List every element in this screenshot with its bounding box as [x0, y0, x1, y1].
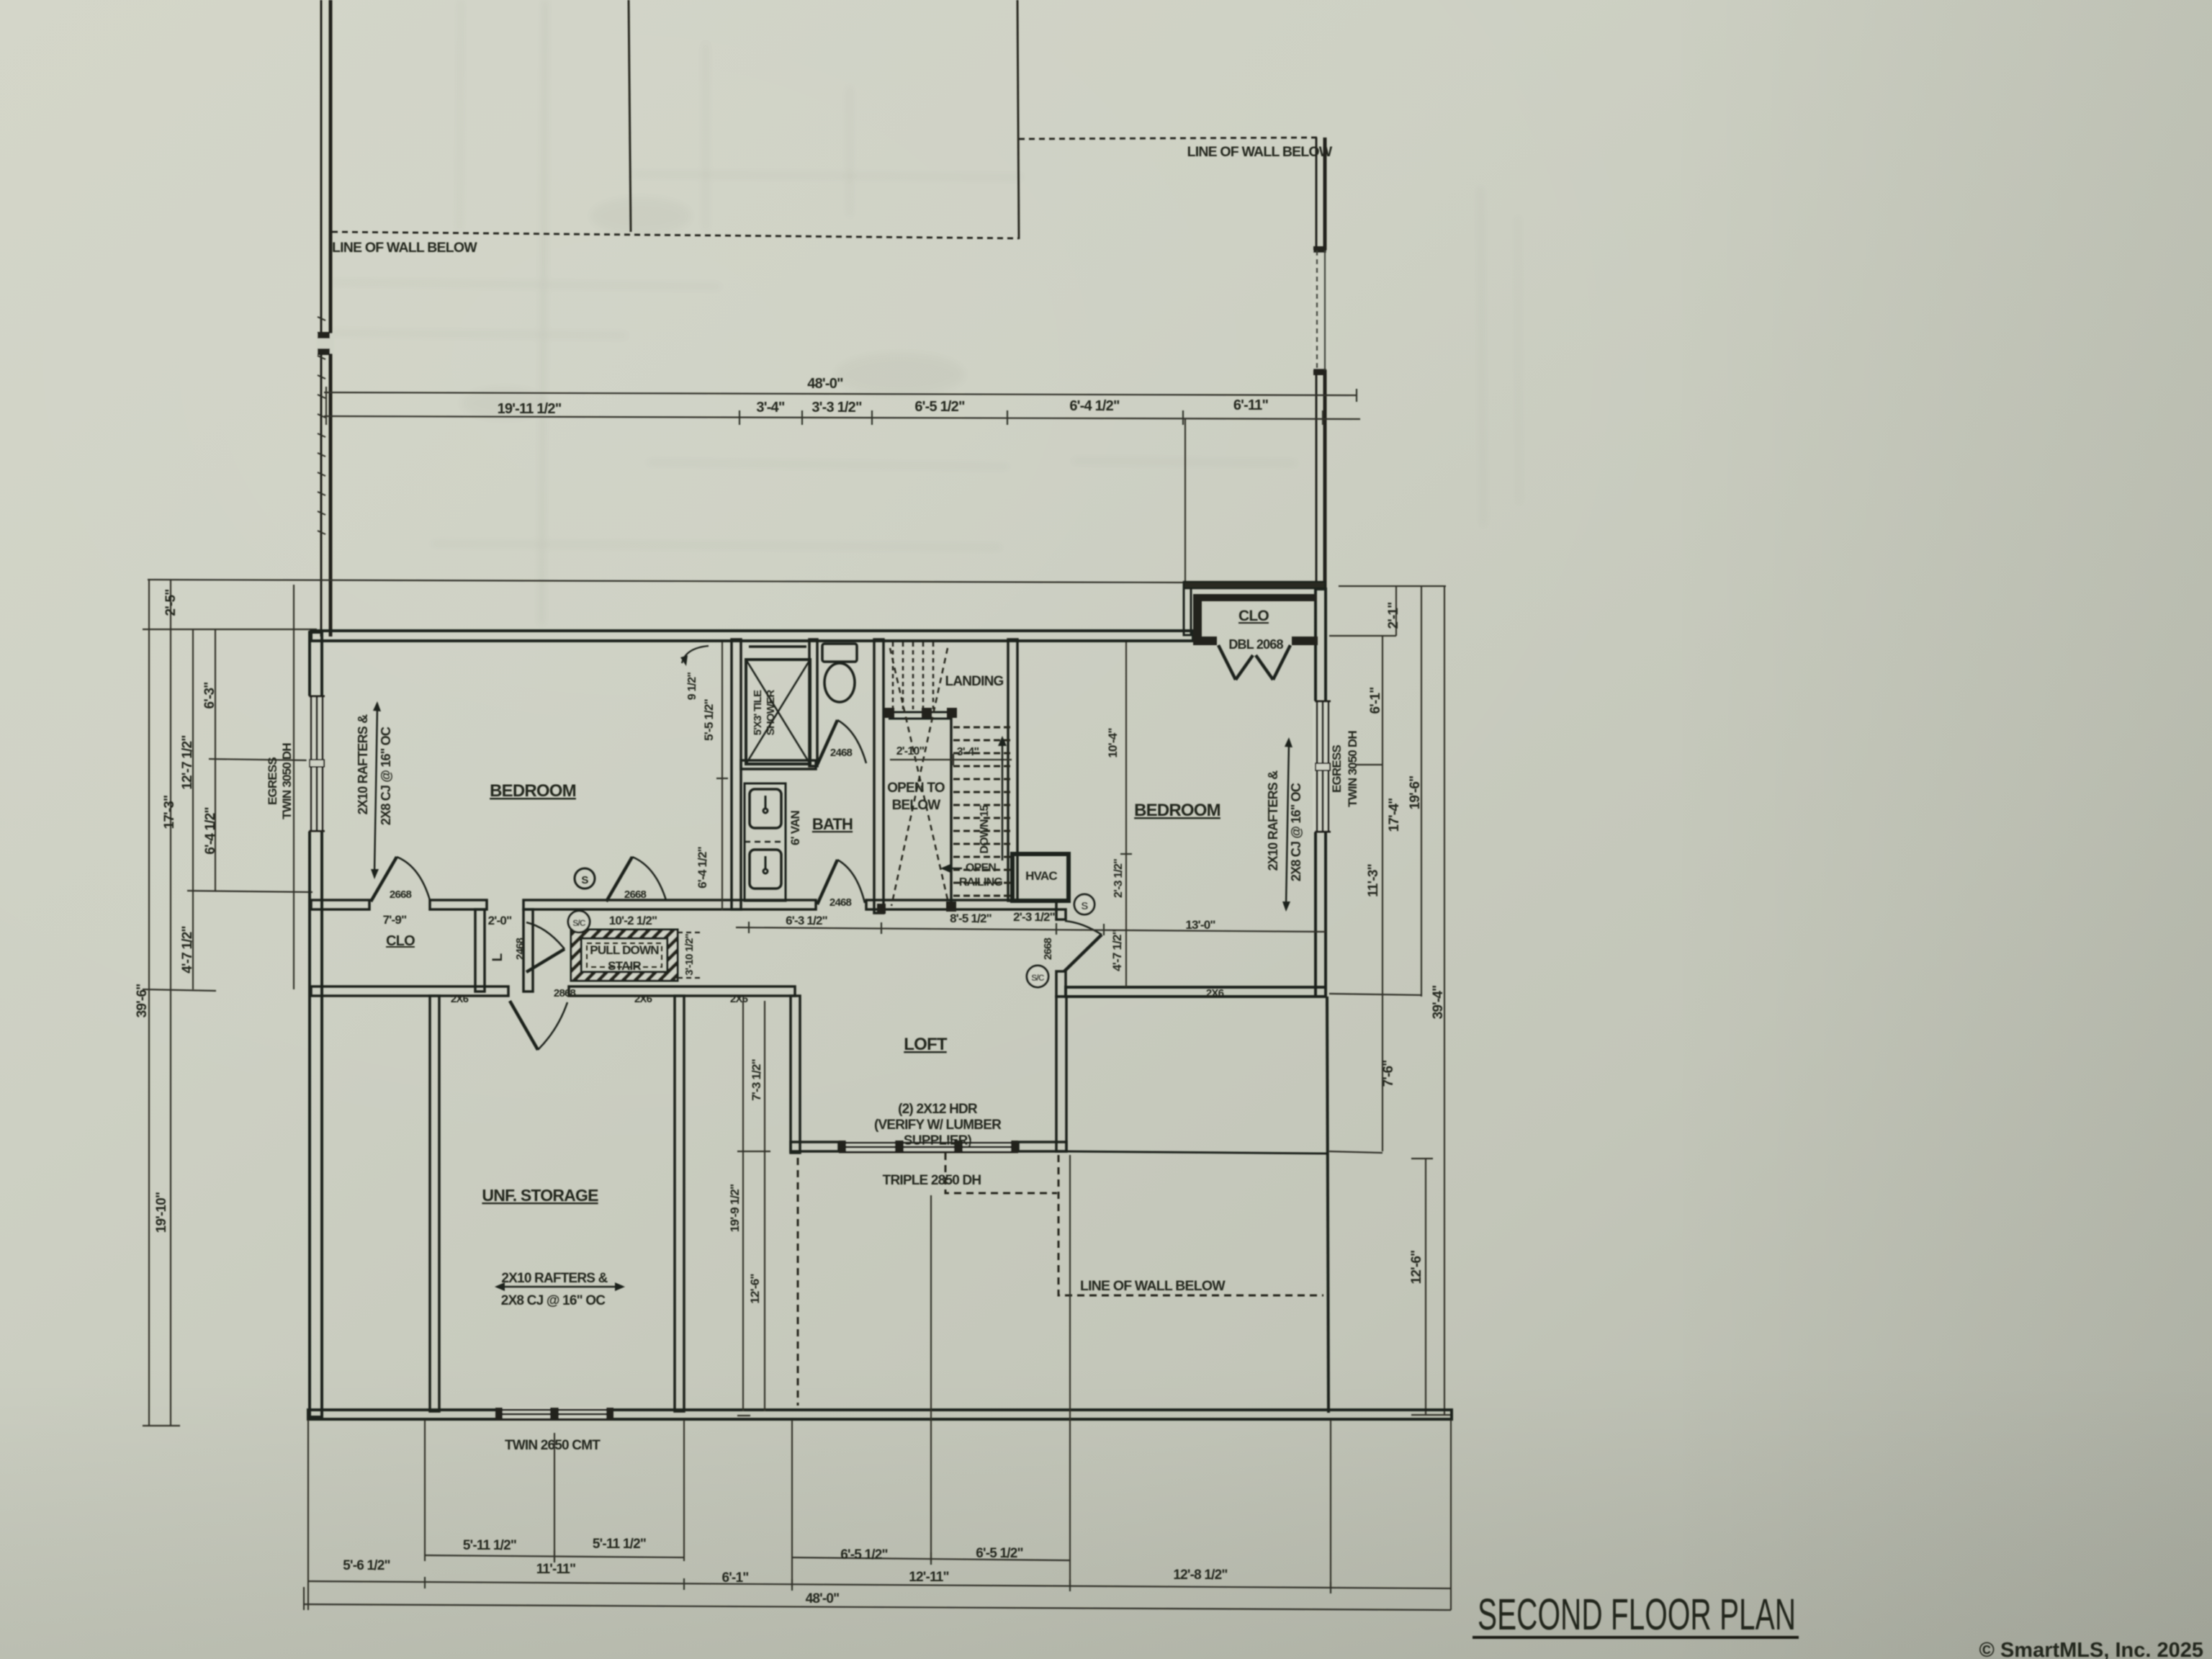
svg-text:CLO: CLO [386, 933, 415, 949]
svg-text:39'-4": 39'-4" [1431, 986, 1446, 1020]
svg-text:(2) 2X12 HDR: (2) 2X12 HDR [898, 1102, 978, 1117]
svg-text:7'-6": 7'-6" [1381, 1061, 1396, 1087]
svg-text:2'-0": 2'-0" [488, 914, 512, 927]
svg-text:EGRESS: EGRESS [1330, 745, 1344, 793]
svg-text:5'-5 1/2": 5'-5 1/2" [702, 699, 716, 741]
svg-text:OPEN: OPEN [966, 862, 996, 874]
svg-text:11'-3": 11'-3" [1366, 864, 1381, 897]
svg-text:17'-4": 17'-4" [1387, 799, 1402, 832]
svg-text:10'-4": 10'-4" [1106, 728, 1120, 757]
svg-text:TWIN 3050 DH: TWIN 3050 DH [280, 743, 294, 819]
svg-text:LANDING: LANDING [945, 674, 1004, 689]
svg-text:5'X3' TILE: 5'X3' TILE [752, 690, 764, 735]
svg-text:SHOWER: SHOWER [765, 690, 777, 736]
svg-text:19'-10": 19'-10" [154, 1192, 169, 1233]
svg-text:2X6: 2X6 [730, 993, 748, 1005]
svg-text:2X8 CJ @ 16" OC: 2X8 CJ @ 16" OC [1289, 783, 1303, 881]
svg-text:(VERIFY W/ LUMBER: (VERIFY W/ LUMBER [874, 1118, 1002, 1133]
svg-text:5'-6 1/2": 5'-6 1/2" [343, 1558, 390, 1573]
svg-text:6'-4 1/2": 6'-4 1/2" [1069, 398, 1120, 414]
svg-text:BEDROOM: BEDROOM [1134, 801, 1220, 820]
svg-text:3'-4": 3'-4" [957, 746, 979, 758]
svg-text:3'-4": 3'-4" [756, 400, 784, 415]
svg-text:S: S [1081, 900, 1088, 912]
svg-text:2X6: 2X6 [1206, 987, 1224, 999]
svg-text:48'-0": 48'-0" [807, 376, 843, 392]
svg-text:48'-0": 48'-0" [806, 1591, 840, 1606]
svg-text:6'-3": 6'-3" [202, 683, 217, 709]
svg-text:STAIR: STAIR [608, 959, 641, 973]
svg-text:2'-5": 2'-5" [163, 590, 179, 616]
svg-text:7'-9": 7'-9" [383, 913, 407, 927]
svg-text:6'-4 1/2": 6'-4 1/2" [696, 847, 709, 889]
svg-text:HVAC: HVAC [1025, 869, 1057, 883]
svg-text:12'-6": 12'-6" [748, 1274, 762, 1303]
svg-text:S/C: S/C [1031, 973, 1045, 983]
svg-text:2'-3 1/2": 2'-3 1/2" [1013, 910, 1055, 924]
svg-text:2X6: 2X6 [634, 993, 652, 1005]
svg-text:SECOND FLOOR PLAN: SECOND FLOOR PLAN [1478, 1590, 1796, 1639]
svg-text:19'-9 1/2": 19'-9 1/2" [728, 1184, 742, 1232]
svg-text:DOWN 15: DOWN 15 [979, 804, 991, 853]
svg-text:LINE OF WALL BELOW: LINE OF WALL BELOW [332, 240, 477, 256]
svg-text:19'-6": 19'-6" [1408, 776, 1423, 810]
svg-text:10'-2 1/2": 10'-2 1/2" [609, 914, 657, 927]
svg-text:2868: 2868 [554, 987, 576, 999]
svg-text:2'-10": 2'-10" [896, 745, 925, 757]
svg-text:BEDROOM: BEDROOM [490, 781, 576, 801]
svg-text:2468: 2468 [829, 896, 852, 909]
svg-text:TRIPLE 2850 DH: TRIPLE 2850 DH [883, 1173, 981, 1188]
svg-text:L: L [490, 953, 505, 961]
svg-text:TWIN 2650 CMT: TWIN 2650 CMT [505, 1438, 601, 1453]
svg-text:LINE OF WALL BELOW: LINE OF WALL BELOW [1080, 1278, 1226, 1294]
svg-text:6'-4 1/2": 6'-4 1/2" [203, 807, 218, 854]
svg-text:2'-1": 2'-1" [1386, 603, 1401, 629]
svg-text:RAILING: RAILING [959, 876, 1003, 889]
svg-text:39'-6": 39'-6" [135, 984, 150, 1018]
svg-text:12'-11": 12'-11" [909, 1570, 948, 1585]
svg-text:2X8 CJ @ 16" OC: 2X8 CJ @ 16" OC [501, 1293, 606, 1308]
svg-text:12'-6": 12'-6" [1409, 1251, 1424, 1285]
svg-text:2X8 CJ @ 16" OC: 2X8 CJ @ 16" OC [379, 727, 393, 825]
svg-text:5'-11 1/2": 5'-11 1/2" [463, 1538, 516, 1553]
svg-text:CLO: CLO [1238, 608, 1269, 624]
svg-text:17'-3": 17'-3" [162, 796, 177, 829]
svg-text:6'-1": 6'-1" [1368, 688, 1383, 714]
svg-text:2X10 RAFTERS &: 2X10 RAFTERS & [356, 714, 370, 815]
svg-text:EGRESS: EGRESS [266, 757, 279, 806]
svg-text:6' VAN: 6' VAN [788, 810, 802, 845]
svg-text:2468: 2468 [830, 747, 853, 759]
svg-text:6'-1": 6'-1" [722, 1570, 749, 1586]
svg-text:2'-3 1/2": 2'-3 1/2" [1112, 859, 1125, 898]
svg-text:2X10 RAFTERS &: 2X10 RAFTERS & [1266, 770, 1280, 871]
svg-text:LINE OF WALL BELOW: LINE OF WALL BELOW [1187, 144, 1333, 160]
svg-text:8'-5 1/2": 8'-5 1/2" [950, 912, 992, 925]
svg-text:13'-0": 13'-0" [1185, 918, 1215, 932]
svg-text:3'-10 1/2": 3'-10 1/2" [683, 933, 696, 975]
svg-text:2668: 2668 [390, 889, 412, 901]
svg-text:SUPPLIER): SUPPLIER) [904, 1133, 972, 1148]
svg-text:DBL 2068: DBL 2068 [1228, 637, 1283, 652]
svg-text:11'-11": 11'-11" [536, 1562, 575, 1577]
svg-text:UNF. STORAGE: UNF. STORAGE [482, 1186, 598, 1205]
svg-text:4'-7 1/2": 4'-7 1/2" [180, 926, 195, 973]
svg-text:3'-3 1/2": 3'-3 1/2" [811, 400, 862, 415]
svg-text:19'-11 1/2": 19'-11 1/2" [498, 401, 562, 417]
svg-text:BELOW: BELOW [892, 798, 941, 813]
svg-text:PULL DOWN: PULL DOWN [590, 943, 659, 957]
svg-text:LOFT: LOFT [904, 1035, 948, 1054]
svg-text:12'-7 1/2": 12'-7 1/2" [180, 735, 195, 789]
svg-text:12'-8 1/2": 12'-8 1/2" [1173, 1568, 1227, 1583]
svg-text:2468: 2468 [514, 938, 526, 960]
svg-text:6'-11": 6'-11" [1233, 397, 1269, 413]
svg-text:6'-5 1/2": 6'-5 1/2" [976, 1546, 1022, 1561]
svg-text:9 1/2": 9 1/2" [686, 673, 698, 701]
svg-text:6'-5 1/2": 6'-5 1/2" [840, 1547, 887, 1563]
svg-text:2668: 2668 [1042, 938, 1054, 960]
svg-text:BATH: BATH [812, 815, 853, 833]
svg-text:S: S [581, 874, 588, 886]
svg-text:7'-3 1/2": 7'-3 1/2" [750, 1059, 763, 1101]
svg-text:4'-7 1/2": 4'-7 1/2" [1110, 930, 1124, 971]
svg-text:OPEN TO: OPEN TO [887, 781, 945, 796]
svg-text:TWIN 3050 DH: TWIN 3050 DH [1346, 731, 1359, 807]
svg-text:6'-3 1/2": 6'-3 1/2" [786, 914, 827, 927]
svg-text:2X6: 2X6 [451, 993, 469, 1005]
svg-text:5'-11 1/2": 5'-11 1/2" [593, 1537, 646, 1552]
svg-text:S/C: S/C [572, 918, 586, 928]
svg-text:6'-5 1/2": 6'-5 1/2" [914, 399, 965, 415]
svg-text:2668: 2668 [624, 889, 647, 901]
svg-text:2X10 RAFTERS &: 2X10 RAFTERS & [501, 1271, 608, 1286]
svg-text:© SmartMLS, Inc. 2025: © SmartMLS, Inc. 2025 [1979, 1639, 2203, 1659]
